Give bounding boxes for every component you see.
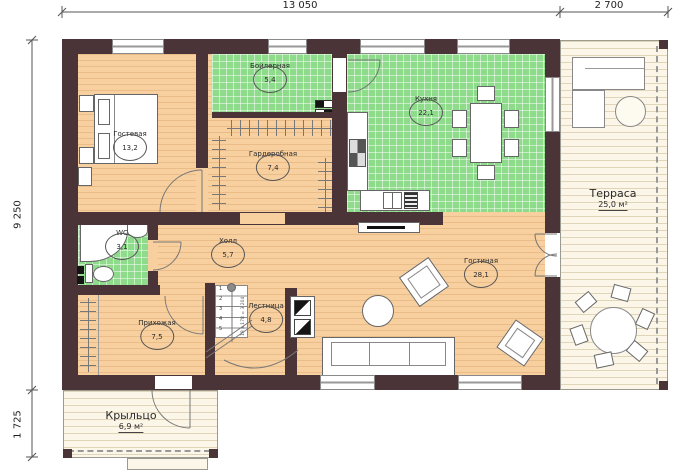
dimension-top-right: 2 700 — [584, 0, 634, 11]
wall-stairs-left — [205, 283, 215, 375]
label-terrace: Терраса 25,0 м² — [590, 187, 637, 211]
terrace-sofa-side — [572, 90, 605, 128]
wardrobe-rack-top — [227, 120, 332, 136]
room-area-circle: 7,5 — [140, 323, 174, 350]
window-kitchen-right — [545, 77, 560, 132]
window-bedroom-top — [112, 39, 164, 54]
wardrobe-rack-right — [318, 158, 332, 212]
dining-chair — [477, 165, 495, 180]
room-area-circle: 5,4 — [253, 66, 287, 93]
wall-boiler-bottom — [212, 112, 332, 118]
dishwasher — [404, 192, 418, 209]
label-porch: Крыльцо 6,9 м² — [105, 409, 156, 433]
room-area-circle: 3,1 — [105, 233, 139, 260]
toilet-tank — [85, 264, 93, 283]
window-kitchen-top-right — [457, 39, 510, 54]
room-area-circle: 28,1 — [464, 261, 498, 288]
wardrobe-opening — [240, 213, 285, 224]
porch-post-right — [209, 449, 218, 458]
armchair-seat — [505, 328, 536, 359]
window-boiler-top — [268, 39, 307, 54]
room-area-circle: 13,2 — [113, 134, 147, 161]
dimension-left-bottom: 1 725 — [13, 395, 24, 455]
fireplace-flue — [294, 319, 311, 335]
wall-wc-bottom — [62, 285, 160, 295]
terrace-post-top — [659, 40, 668, 49]
stair-step-number: 1 — [219, 287, 222, 292]
stair-dimension-note: 18 х 178 = 3 204 — [241, 297, 246, 336]
stair-step-number: 2 — [219, 297, 222, 302]
window-kitchen-top-left — [360, 39, 425, 54]
dimension-left-main: 9 250 — [13, 185, 24, 245]
pillow — [98, 133, 110, 159]
dresser — [78, 167, 92, 186]
outdoor-name: Терраса — [590, 187, 637, 200]
room-label-hallway: Прихожая 7,5 — [138, 320, 176, 350]
pillow — [98, 99, 110, 125]
boiler-door-opening — [333, 58, 346, 92]
room-area-circle: 7,4 — [256, 154, 290, 181]
terrace-sofa-top — [572, 57, 645, 90]
stair-step-number: 3 — [219, 307, 222, 312]
nightstand — [79, 147, 94, 164]
kitchen-sink — [383, 192, 402, 209]
wc-door-opening — [148, 240, 158, 271]
fireplace-flue — [294, 300, 311, 316]
porch-step — [127, 458, 208, 470]
dining-chair — [452, 139, 467, 157]
hallway-closet-rack — [80, 298, 96, 372]
wc-riser — [77, 276, 84, 284]
terrace-sofa-backline — [585, 68, 644, 69]
stair-step-number: 4 — [219, 317, 222, 322]
room-label-stairs: Лестница 4,8 — [248, 303, 284, 333]
boiler-equipment — [315, 100, 333, 108]
window-living-bottom-right — [458, 375, 522, 390]
nightstand — [79, 95, 94, 112]
dining-chair — [504, 139, 519, 157]
terrace-side-table — [615, 96, 646, 127]
wc-riser — [77, 266, 84, 274]
stair-step-number: 5 — [219, 327, 222, 332]
toilet-bowl — [93, 266, 114, 282]
outdoor-area: 6,9 м² — [119, 422, 144, 433]
tv-console — [358, 222, 420, 233]
hallway-closet-divider — [98, 295, 99, 375]
cooktop — [349, 139, 366, 167]
porch-dashed-edge — [68, 450, 210, 452]
room-label-kitchen: Кухня 22,1 — [409, 96, 443, 126]
kitchen-floor — [347, 54, 545, 212]
outdoor-area: 25,0 м² — [598, 200, 628, 211]
fireplace — [290, 296, 315, 338]
outdoor-name: Крыльцо — [105, 409, 156, 422]
terrace-dashed-edge — [656, 46, 658, 384]
room-area-circle: 5,7 — [211, 241, 245, 268]
sofa — [322, 337, 455, 377]
room-label-wardrobe: Гардеробная 7,4 — [249, 151, 297, 181]
coffee-table — [362, 295, 394, 327]
dining-chair — [504, 110, 519, 128]
tv-screen — [367, 226, 405, 229]
sofa-seat — [331, 342, 446, 366]
room-area-circle: 4,8 — [249, 306, 283, 333]
room-area-circle: 22,1 — [409, 99, 443, 126]
room-label-living: Гостиная 28,1 — [464, 258, 498, 288]
dimension-top-main: 13 050 — [270, 0, 330, 11]
terrace-post-bottom — [659, 381, 668, 390]
porch-post-left — [63, 449, 72, 458]
dining-chair — [452, 110, 467, 128]
wall-bedroom-bottom — [62, 212, 208, 225]
sofa-cushion-divider — [409, 342, 410, 366]
sofa-cushion-divider — [369, 342, 370, 366]
room-label-hall: Холл 5,7 — [211, 238, 245, 268]
armchair-seat — [407, 265, 440, 298]
room-label-guest: Гостевая 13,2 — [113, 131, 147, 161]
bedroom-door-opening — [196, 168, 208, 212]
wardrobe-rack-left — [212, 136, 226, 210]
dining-chair — [477, 86, 495, 101]
window-living-bottom-left — [320, 375, 375, 390]
stair-post — [227, 283, 236, 292]
dining-table — [470, 103, 502, 163]
terrace-door-opening — [545, 233, 560, 277]
room-label-boiler: Бойлерная 5,4 — [250, 63, 290, 93]
room-label-wc: WC 3,1 — [105, 230, 139, 260]
floor-plan: 1 2 3 4 5 18 х 178 = 3 204 — [0, 0, 680, 473]
porch-door-opening — [155, 376, 192, 389]
